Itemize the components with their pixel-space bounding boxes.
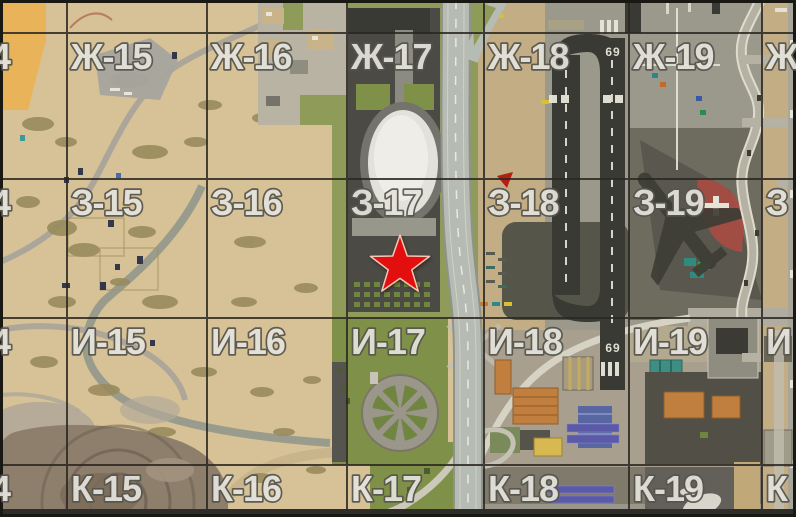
cell-label: З-16 [211, 182, 282, 223]
cell-label: К-15 [71, 468, 142, 509]
cell-label: К [766, 468, 789, 509]
cell-label: З-18 [488, 182, 559, 223]
cell-label: К-17 [351, 468, 421, 509]
cell-label: И-16 [211, 321, 285, 362]
cell-label: 4 [0, 36, 11, 77]
cell-label: З [766, 182, 788, 223]
cell-label: З-17 [351, 182, 422, 223]
runway-number-bottom: 69 [605, 341, 620, 355]
cell-label: З-15 [71, 182, 143, 223]
cell-label: 4 [0, 182, 11, 223]
cell-label: И [766, 321, 791, 362]
cell-label: И-17 [351, 321, 425, 362]
cell-label: 4 [0, 468, 11, 509]
cell-label: Ж [765, 36, 796, 77]
map-canvas[interactable]: 69 69 4 Ж-15 Ж-16 Ж-17 Ж-18 Ж-19 Ж 4 З-1… [0, 0, 796, 517]
cell-label: Ж-19 [632, 36, 714, 77]
cell-label: И-15 [71, 321, 146, 362]
runway-number-top: 69 [605, 45, 620, 59]
cell-label: Ж-15 [70, 36, 153, 77]
cell-label: И-18 [488, 321, 562, 362]
cell-label: К-18 [488, 468, 558, 509]
cell-label: И-19 [633, 321, 707, 362]
cell-label: К-16 [211, 468, 281, 509]
game-map: 69 69 4 Ж-15 Ж-16 Ж-17 Ж-18 Ж-19 Ж 4 З-1… [0, 0, 796, 517]
cell-label: Ж-18 [487, 36, 569, 77]
cell-label: К-19 [633, 468, 703, 509]
cell-label: 4 [0, 321, 11, 362]
cell-label: З-19 [633, 182, 704, 223]
cell-label: Ж-17 [350, 36, 432, 77]
cell-label: Ж-16 [210, 36, 292, 77]
